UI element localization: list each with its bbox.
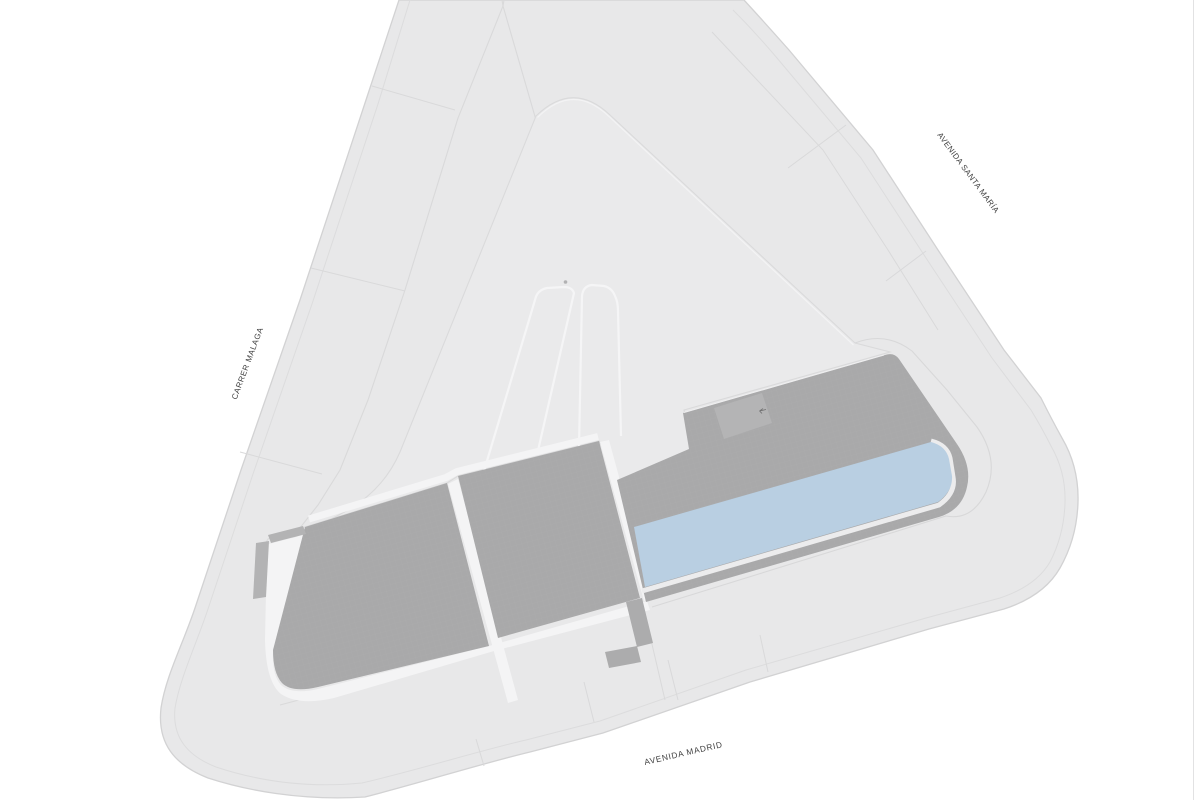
svg-text:CARRER MALAGA: CARRER MALAGA (230, 326, 265, 401)
svg-text:AVENIDA MADRID: AVENIDA MADRID (643, 739, 723, 767)
svg-text:AVENIDA SANTA MARÍA: AVENIDA SANTA MARÍA (935, 131, 1001, 215)
